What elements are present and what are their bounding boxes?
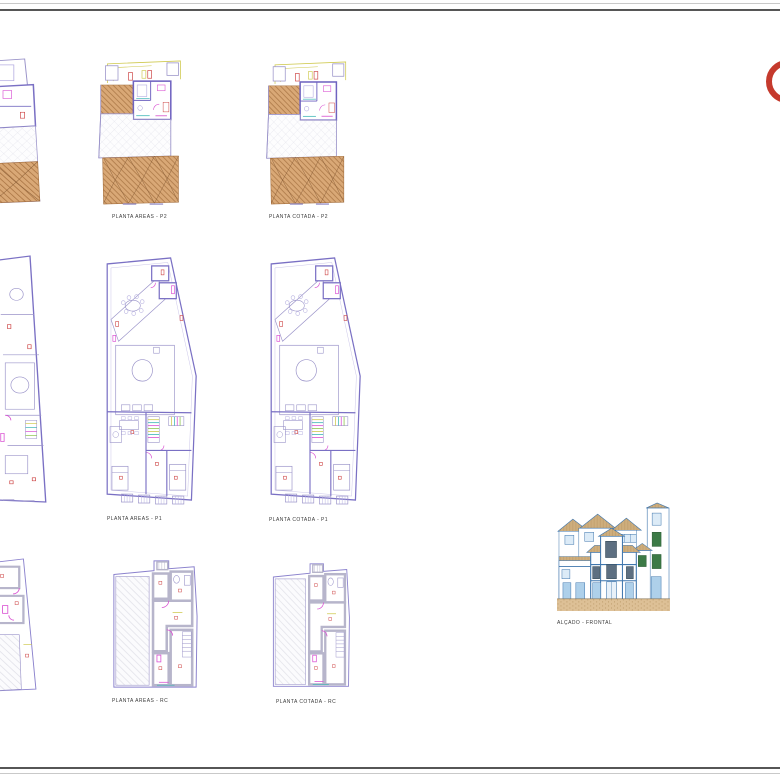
- floor-plan-areas-rc: [108, 558, 201, 692]
- caption-planta-areas-p1: PLANTA AREAS - P1: [107, 516, 162, 522]
- caption-planta-areas-rc: PLANTA AREAS - RC: [112, 698, 168, 704]
- sheet-border-top-light: [0, 3, 780, 4]
- floor-plan-rc-left-partial: [0, 557, 38, 693]
- floor-plan-p1-left-partial: [0, 254, 48, 506]
- caption-planta-areas-p2: PLANTA AREAS - P2: [112, 214, 167, 220]
- sheet-border-bottom-dark: [0, 767, 780, 769]
- floor-plan-areas-p2: [94, 60, 190, 206]
- sheet-border-top-dark: [0, 9, 780, 11]
- caption-planta-cotada-p1: PLANTA COTADA - P1: [269, 517, 328, 523]
- caption-planta-cotada-p2: PLANTA COTADA - P2: [269, 214, 328, 220]
- caption-alcado-frontal: ALÇADO - FRONTAL: [557, 620, 612, 626]
- drawing-sheet: PLANTA AREAS - P2 PLANTA COTADA - P2 PLA…: [0, 0, 780, 780]
- sheet-border-bottom-light: [0, 773, 780, 774]
- elevation-frontal-drawing: [557, 502, 670, 613]
- floor-plan-cotada-p2: [262, 61, 355, 206]
- floor-plan-cotada-rc: [268, 561, 353, 691]
- floor-plan-p2-left-partial: [0, 57, 42, 205]
- floor-plan-cotada-p1: [257, 256, 363, 506]
- caption-planta-cotada-rc: PLANTA COTADA - RC: [276, 699, 336, 705]
- floor-plan-areas-p1: [93, 256, 199, 506]
- company-logo-ring-icon: [766, 60, 780, 103]
